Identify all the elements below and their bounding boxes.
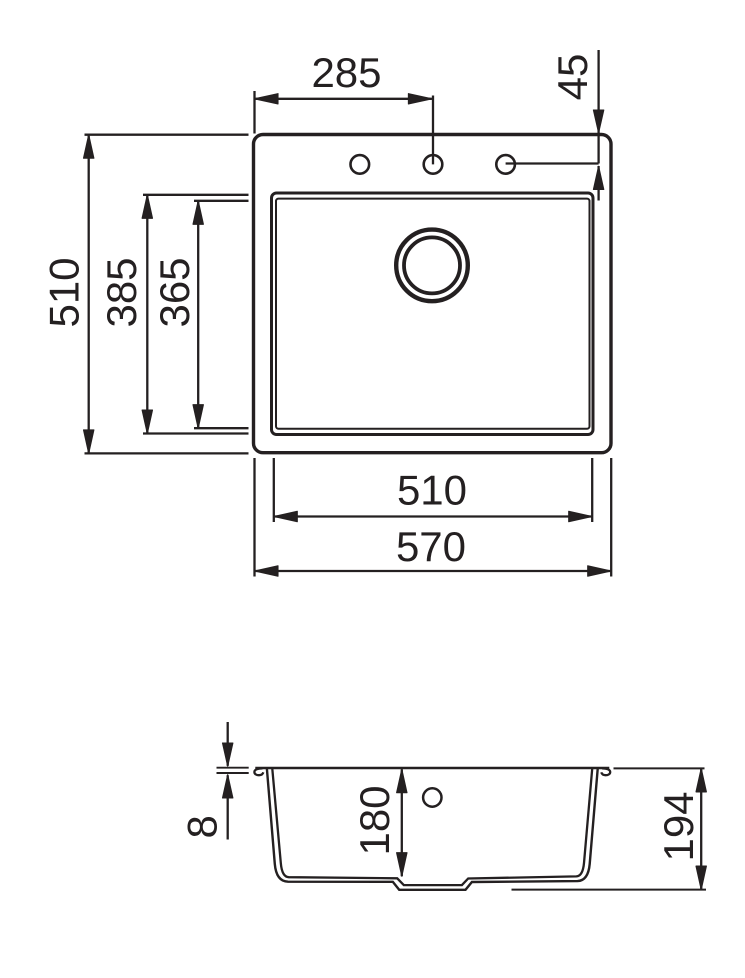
svg-text:45: 45	[549, 54, 596, 101]
svg-text:194: 194	[655, 791, 702, 861]
svg-text:365: 365	[151, 257, 198, 327]
svg-text:510: 510	[41, 257, 88, 327]
svg-text:570: 570	[396, 523, 466, 570]
svg-text:180: 180	[351, 785, 398, 855]
svg-text:285: 285	[311, 49, 381, 96]
svg-text:385: 385	[98, 257, 145, 327]
svg-text:510: 510	[397, 467, 467, 514]
svg-text:8: 8	[179, 815, 226, 838]
